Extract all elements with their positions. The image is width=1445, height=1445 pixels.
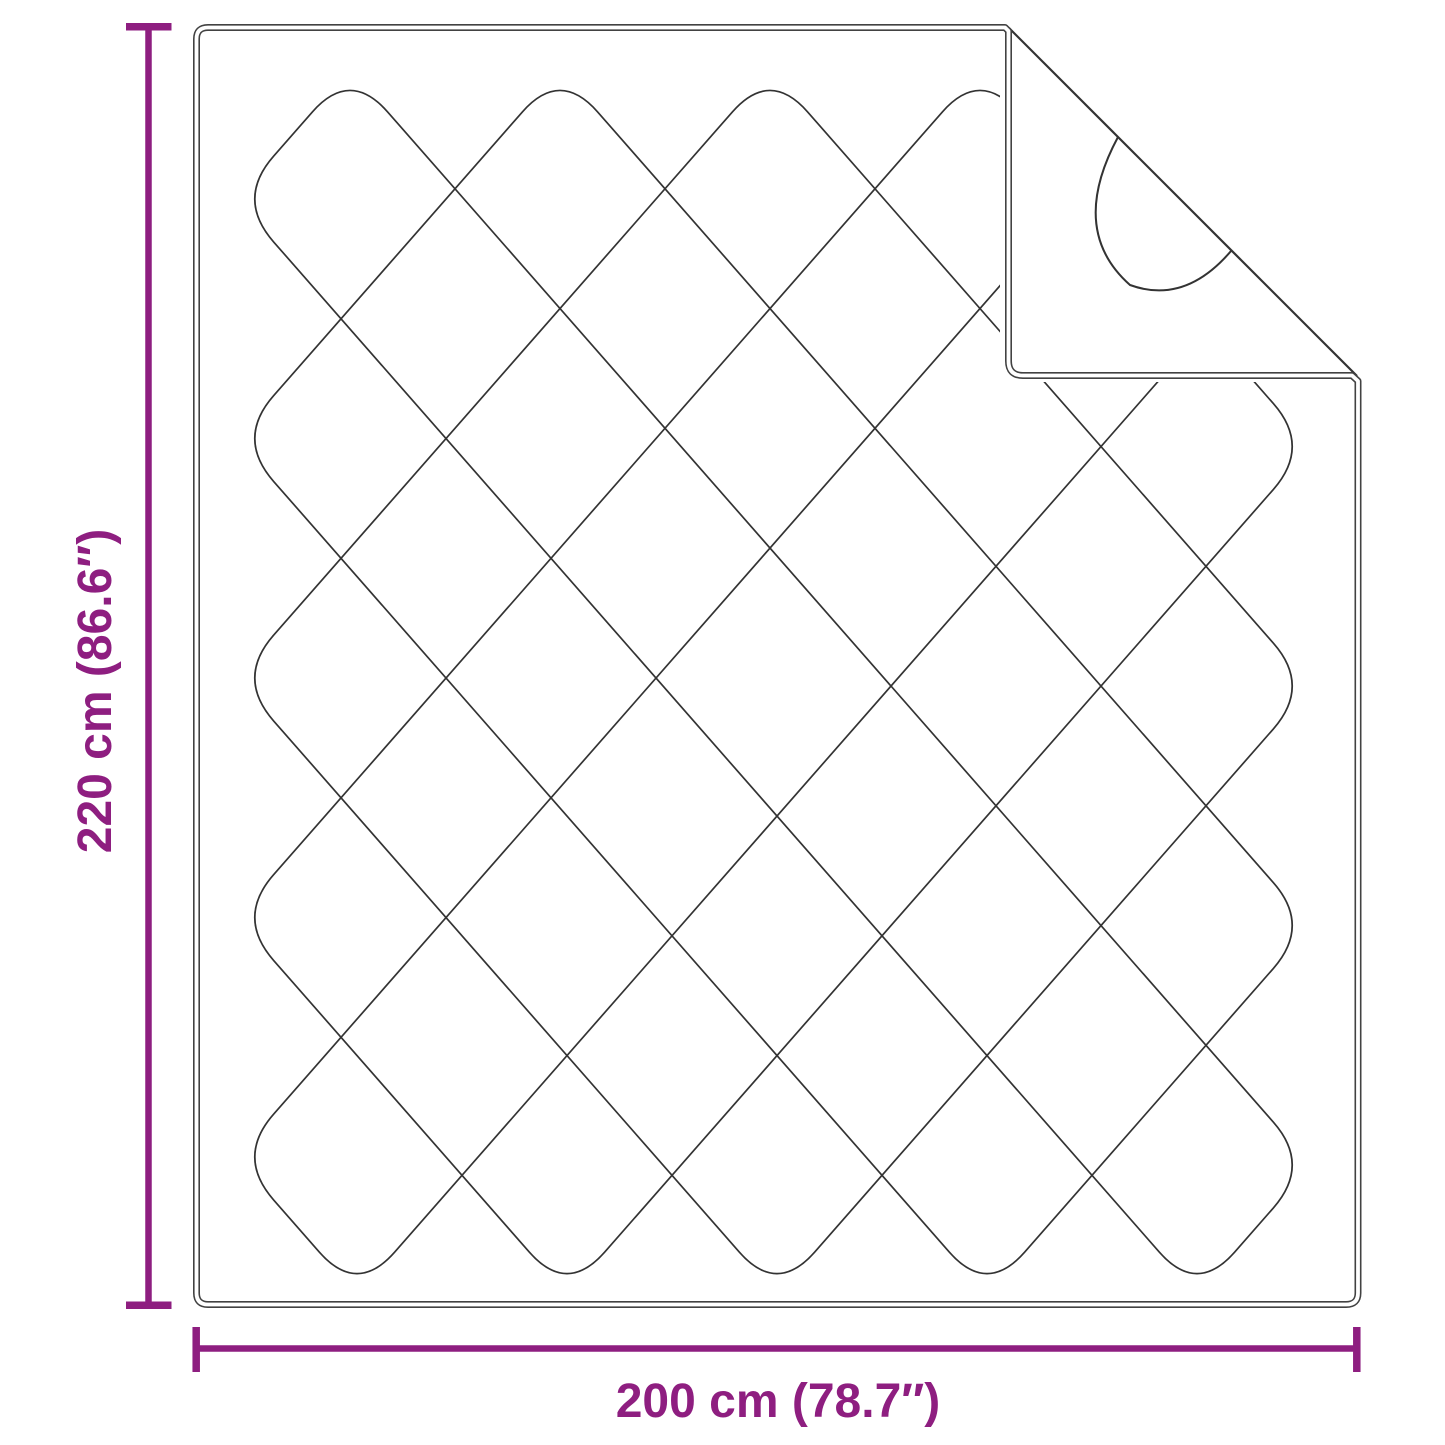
flap-backside-stitch-arc: [1096, 137, 1231, 290]
quilt-stitch-loop: [255, 90, 1292, 1273]
quilt-stitch-loop: [255, 90, 1292, 1273]
blanket-diagram-canvas: 220 cm (86.6″) 200 cm (78.7″): [0, 0, 1445, 1445]
width-dimension: 200 cm (78.7″): [196, 1327, 1357, 1428]
blanket-outline-inner: [197, 28, 1359, 1305]
quilt-stitch-loop: [255, 90, 1292, 1273]
width-dimension-label: 200 cm (78.7″): [616, 1375, 941, 1428]
blanket-outline-outer: [197, 28, 1359, 1305]
quilt-stitch-pattern: [255, 90, 1292, 1273]
quilt-stitch-loop: [255, 90, 1292, 1273]
fold-diagonal-edge: [1009, 28, 1357, 376]
height-dimension-label: 220 cm (86.6″): [69, 529, 122, 854]
height-dimension: 220 cm (86.6″): [69, 27, 172, 1305]
quilt-stitch-loop: [255, 90, 1292, 1273]
product-dimension-diagram: 220 cm (86.6″) 200 cm (78.7″): [0, 0, 1445, 1445]
